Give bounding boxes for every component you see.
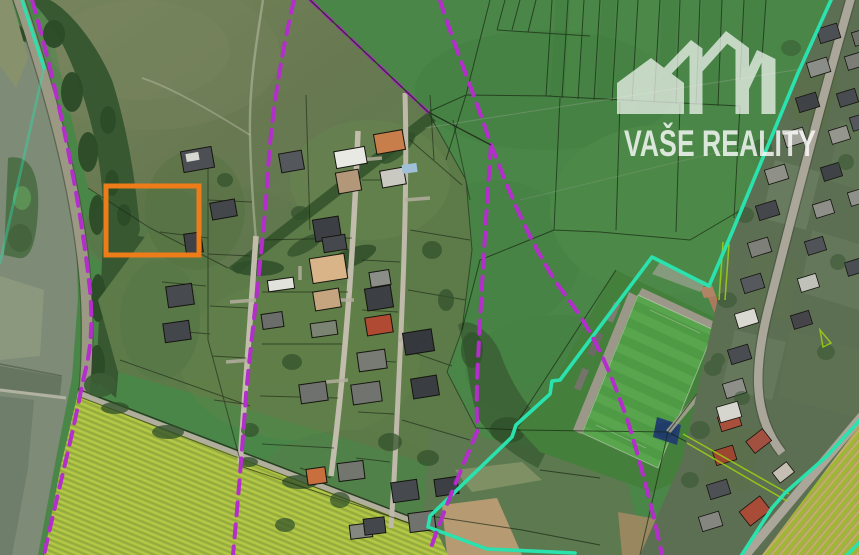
svg-text:VAŠE REALITY: VAŠE REALITY <box>624 122 816 164</box>
